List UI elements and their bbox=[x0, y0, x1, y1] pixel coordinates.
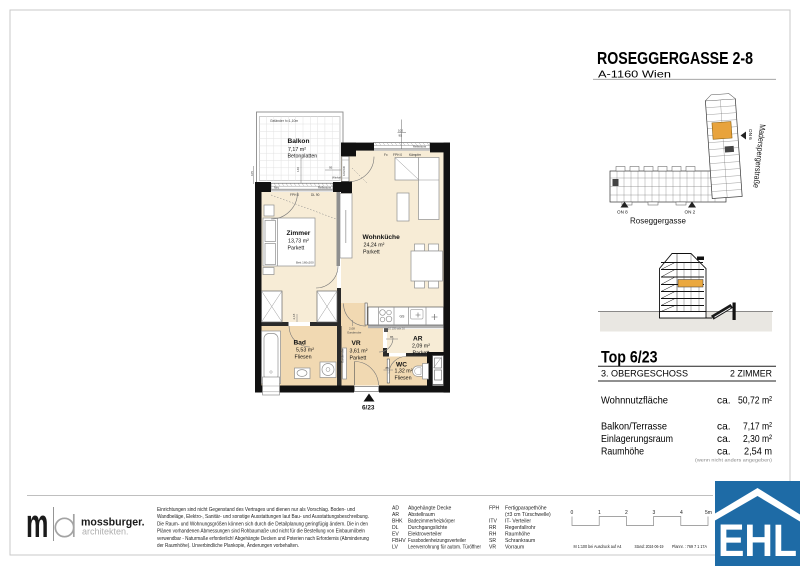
svg-text:Zimmer: Zimmer bbox=[287, 230, 311, 237]
svg-text:SR: SR bbox=[489, 538, 496, 544]
svg-text:AR: AR bbox=[392, 512, 399, 518]
svg-text:Fliesen: Fliesen bbox=[295, 355, 312, 361]
svg-text:AR: AR bbox=[413, 336, 423, 343]
svg-text:5,53 m²: 5,53 m² bbox=[296, 348, 314, 354]
svg-text:160/230: 160/230 bbox=[342, 165, 346, 176]
svg-text:GS: GS bbox=[400, 315, 406, 319]
svg-text:95: 95 bbox=[399, 134, 403, 138]
svg-text:architekten.: architekten. bbox=[82, 527, 129, 537]
svg-text:Raumhöhe: Raumhöhe bbox=[601, 447, 644, 458]
svg-text:7,17 m²: 7,17 m² bbox=[743, 422, 773, 433]
svg-text:2,30 m²: 2,30 m² bbox=[743, 434, 773, 445]
svg-text:FPH 0: FPH 0 bbox=[290, 193, 299, 197]
svg-text:BHK: BHK bbox=[392, 519, 403, 525]
svg-text:(±3 cm Türschwelle): (±3 cm Türschwelle) bbox=[505, 512, 551, 518]
svg-text:Balkon: Balkon bbox=[288, 138, 310, 145]
svg-text:Parkett: Parkett bbox=[363, 250, 380, 256]
svg-text:ON 2: ON 2 bbox=[685, 210, 696, 215]
svg-text:140: 140 bbox=[296, 167, 300, 172]
svg-text:102: 102 bbox=[398, 129, 403, 133]
svg-text:RR: RR bbox=[489, 525, 497, 531]
svg-text:Bad: Bad bbox=[294, 340, 306, 347]
svg-text:3: 3 bbox=[653, 510, 656, 516]
svg-text:ON 6: ON 6 bbox=[748, 129, 753, 140]
svg-text:Winkel: Winkel bbox=[332, 176, 341, 180]
svg-text:ITV: ITV bbox=[489, 519, 498, 525]
svg-text:FPH: FPH bbox=[489, 506, 500, 512]
svg-text:7,17 m²: 7,17 m² bbox=[288, 147, 306, 153]
svg-text:Bett 160x200: Bett 160x200 bbox=[296, 261, 314, 265]
svg-text:EHL: EHL bbox=[718, 515, 797, 566]
svg-text:(wenn nicht anders angegeben): (wenn nicht anders angegeben) bbox=[695, 458, 772, 464]
svg-text:1,32 m²: 1,32 m² bbox=[395, 369, 413, 375]
svg-text:ON 8: ON 8 bbox=[617, 210, 628, 215]
svg-text:Einlagerungsraum: Einlagerungsraum bbox=[601, 434, 673, 445]
svg-text:3,61 m²: 3,61 m² bbox=[350, 349, 368, 355]
svg-text:Fliesen: Fliesen bbox=[395, 376, 412, 382]
svg-text:Plänen vorhandenen Abmessungen: Plänen vorhandenen Abmessungen sind Rohb… bbox=[157, 529, 365, 535]
svg-text:2,54 m: 2,54 m bbox=[744, 447, 772, 458]
svg-text:Betonplatten: Betonplatten bbox=[288, 154, 318, 160]
svg-text:95: 95 bbox=[329, 166, 333, 170]
svg-text:0: 0 bbox=[571, 510, 574, 516]
svg-text:Fertigparapethöhe: Fertigparapethöhe bbox=[505, 506, 547, 512]
svg-text:Raumhöhe: Raumhöhe bbox=[505, 532, 530, 538]
svg-text:FPH 0: FPH 0 bbox=[393, 153, 402, 157]
svg-text:Geländer h=1,10m: Geländer h=1,10m bbox=[270, 119, 298, 123]
svg-text:EV: EV bbox=[392, 532, 399, 538]
svg-text:VR: VR bbox=[489, 545, 496, 551]
svg-text:105: 105 bbox=[250, 171, 254, 176]
svg-text:Top 6/23: Top 6/23 bbox=[601, 349, 658, 367]
svg-text:Fussbodenheizungsverteiler: Fussbodenheizungsverteiler bbox=[408, 538, 466, 544]
svg-text:ca.: ca. bbox=[717, 396, 731, 407]
svg-text:Parkett: Parkett bbox=[413, 351, 430, 357]
svg-text:M 1:100 bei Ausdruck auf A4: M 1:100 bei Ausdruck auf A4 bbox=[574, 544, 622, 549]
svg-text:85: 85 bbox=[386, 366, 390, 370]
svg-text:3. OBERGESCHOSS: 3. OBERGESCHOSS bbox=[601, 369, 688, 380]
svg-text:ca.: ca. bbox=[717, 434, 731, 445]
svg-text:Abgehängte Decke: Abgehängte Decke bbox=[408, 506, 451, 512]
svg-text:ca.: ca. bbox=[717, 422, 731, 433]
svg-text:24,24 m²: 24,24 m² bbox=[364, 243, 385, 249]
svg-text:85: 85 bbox=[390, 335, 394, 339]
svg-text:Roseggergasse: Roseggergasse bbox=[630, 216, 686, 226]
svg-text:Die Raum- und Wohnungsgrößen k: Die Raum- und Wohnungsgrößen können sich… bbox=[157, 521, 368, 527]
svg-text:50,72 m²: 50,72 m² bbox=[738, 396, 773, 407]
svg-text:10 105 wds 16: 10 105 wds 16 bbox=[388, 326, 405, 330]
svg-text:2 ZIMMER: 2 ZIMMER bbox=[730, 369, 772, 380]
svg-text:Abstellraum: Abstellraum bbox=[408, 512, 435, 518]
svg-text:DL: DL bbox=[392, 525, 399, 531]
svg-text:Durchgangslichte: Durchgangslichte bbox=[408, 525, 448, 531]
svg-text:Parkett: Parkett bbox=[288, 246, 305, 252]
svg-text:Wandbeläge, Elektro-, Sanitär-: Wandbeläge, Elektro-, Sanitär- und sonst… bbox=[157, 514, 369, 520]
svg-text:WC: WC bbox=[396, 362, 407, 369]
svg-text:Vorraum: Vorraum bbox=[505, 545, 524, 551]
svg-text:Garderobe: Garderobe bbox=[347, 331, 362, 335]
svg-text:Plannr. : 769 7 1 17A: Plannr. : 769 7 1 17A bbox=[672, 544, 707, 549]
svg-text:LV: LV bbox=[392, 545, 398, 551]
svg-text:4: 4 bbox=[680, 510, 683, 516]
svg-text:VR: VR bbox=[352, 340, 361, 347]
svg-text:der Raumhöhe). Unverbindliche: der Raumhöhe). Unverbindliche Plankopie,… bbox=[157, 542, 299, 549]
svg-text:ca.: ca. bbox=[717, 447, 731, 458]
svg-text:Elektroverteiler: Elektroverteiler bbox=[408, 532, 442, 538]
svg-text:5m: 5m bbox=[705, 510, 712, 516]
svg-text:FBHV: FBHV bbox=[392, 538, 406, 544]
svg-text:Reflexions: Reflexions bbox=[318, 185, 332, 189]
svg-text:Reflexions: Reflexions bbox=[413, 145, 427, 149]
svg-text:AD: AD bbox=[392, 506, 399, 512]
svg-text:verwendbar - Naturmaße erforde: verwendbar - Naturmaße erforderlich! Abg… bbox=[157, 536, 369, 542]
svg-text:2,09 m²: 2,09 m² bbox=[412, 344, 430, 350]
svg-text:RH: RH bbox=[489, 532, 497, 538]
svg-text:Einrichtungen sind nicht Gegen: Einrichtungen sind nicht Gegenstand des … bbox=[157, 507, 355, 513]
svg-text:Schrankraum: Schrankraum bbox=[505, 538, 535, 544]
svg-text:2,18: 2,18 bbox=[292, 313, 296, 319]
svg-text:Parkett: Parkett bbox=[350, 356, 367, 362]
svg-text:ROSEGGERGASSE 2-8: ROSEGGERGASSE 2-8 bbox=[597, 48, 753, 68]
svg-text:13,73 m²: 13,73 m² bbox=[288, 239, 309, 245]
svg-text:Leerverrohrung für autom. Türö: Leerverrohrung für autom. Türöffner bbox=[408, 545, 481, 551]
svg-text:IT- Verteiler: IT- Verteiler bbox=[505, 519, 531, 525]
svg-text:Niro: Niro bbox=[274, 185, 280, 189]
svg-text:DL 90: DL 90 bbox=[311, 193, 320, 197]
svg-text:6/23: 6/23 bbox=[362, 405, 375, 412]
svg-text:Wohnnutzfläche: Wohnnutzfläche bbox=[601, 396, 668, 407]
svg-text:m: m bbox=[26, 502, 48, 546]
svg-text:A-1160 Wien: A-1160 Wien bbox=[598, 70, 671, 81]
svg-text:1: 1 bbox=[598, 510, 601, 516]
svg-text:Wohnküche: Wohnküche bbox=[363, 234, 401, 241]
svg-text:Stand: 2024-06-19: Stand: 2024-06-19 bbox=[635, 544, 664, 549]
svg-text:2: 2 bbox=[625, 510, 628, 516]
svg-text:Garderobe: Garderobe bbox=[341, 348, 345, 363]
svg-text:Balkon/Terrasse: Balkon/Terrasse bbox=[601, 422, 667, 433]
svg-text:Badezimmerheizkörper: Badezimmerheizkörper bbox=[408, 519, 455, 525]
svg-text:Regenfallrohr: Regenfallrohr bbox=[505, 525, 536, 531]
svg-text:Fx: Fx bbox=[384, 153, 388, 157]
